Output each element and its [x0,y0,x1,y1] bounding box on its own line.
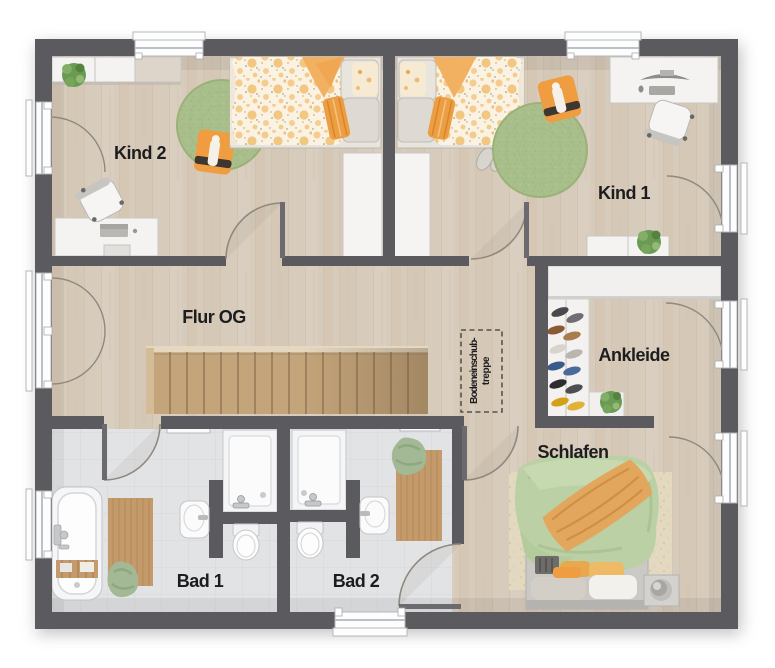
svg-text:Bodeneinschub-: Bodeneinschub- [469,338,480,404]
svg-text:Bad 2: Bad 2 [333,571,380,591]
svg-text:Schlafen: Schlafen [537,442,608,462]
svg-text:Kind 1: Kind 1 [598,183,650,203]
svg-text:Kind 2: Kind 2 [114,143,166,163]
svg-text:treppe: treppe [481,356,492,385]
svg-text:Bad 1: Bad 1 [177,571,224,591]
svg-text:Flur OG: Flur OG [182,307,246,327]
svg-text:Ankleide: Ankleide [598,345,670,365]
